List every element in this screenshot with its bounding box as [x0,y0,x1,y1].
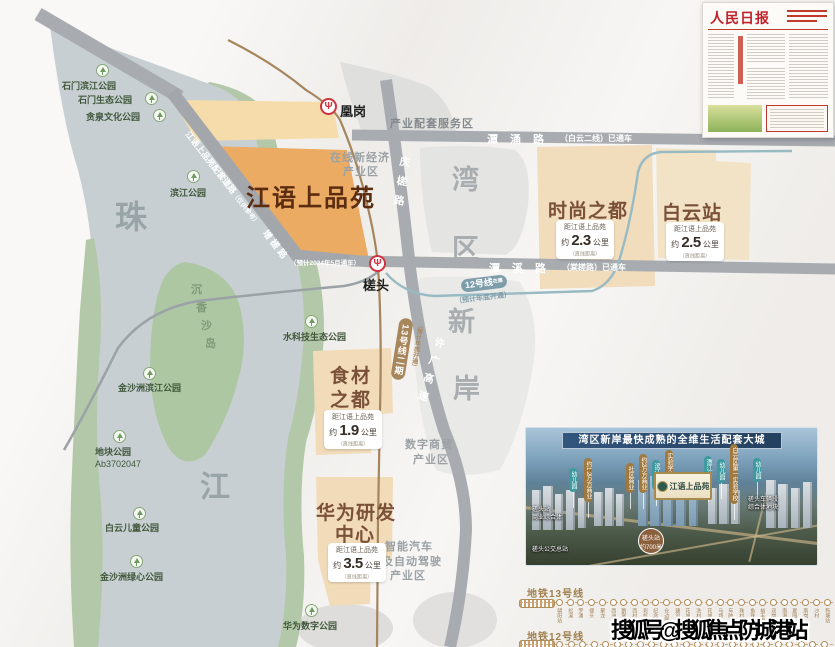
dest-baiyun-title: 白云站 [662,198,722,225]
island-char-3: 沙 [201,317,212,333]
metro13-title: 地铁13号线 [527,585,584,600]
park-tree-icon [305,315,318,328]
badge-dist-label: 距江语上品苑 [670,224,720,234]
aerial-label-line: 槎头站 [532,506,562,514]
badge-approx: 约 [561,238,569,247]
aerial-badge-line: 槎头站 [639,535,663,544]
newspaper-column [708,34,734,100]
metro13-station-label: 聚龙 [599,608,604,618]
road-label-tanyong: 潭涌路 [487,131,556,147]
park-label: 滨江公园 [170,186,206,199]
vertical-headline-strip [738,36,743,84]
metro13-station-dot [759,599,766,606]
aerial-label-line: 商业综合体 [532,514,562,522]
metro12-station-dot [821,641,828,647]
newspaper-clipping: 人民日报 [702,2,834,138]
newspaper-masthead: 人民日报 [710,8,770,28]
badge-note: （直线距离） [564,250,607,258]
aerial-tag: 白云区第一实验学校 [730,444,738,504]
metro13-station-label: 新塘站 [824,608,829,623]
metro13-station-dot [824,599,831,606]
badge-note: （直线距离） [674,252,717,260]
metro13-station-dot [695,599,702,606]
metro13-station-dot [684,599,691,606]
metro13-station-dot [652,599,659,606]
metro12-station-dot [591,641,598,647]
metro13-station-dot [791,599,798,606]
metro12-station-dot [579,641,586,647]
metro13-station-dot [663,599,670,606]
metro12-station-dot [556,641,563,647]
metro13-station-label: 沙村 [813,608,818,618]
park-label: 金沙洲滨江公园 [118,381,181,394]
aerial-building [616,494,624,526]
aerial-building [778,484,788,528]
zone-char-qu: 区 [452,227,479,266]
island-char-1: 沉 [191,281,202,297]
badge-km: 3.5 [343,555,362,572]
metro13-station-dot [567,599,574,606]
badge-approx: 约 [333,561,341,570]
aerial-label-line: 槎头车辆段 [748,496,778,504]
road-status-tanyong: （白云二线）已通车 [560,133,632,144]
metro13-station-dot [749,599,756,606]
badge-km: 2.5 [681,234,700,251]
badge-approx: 约 [329,428,337,437]
dest-shishang-badge: 距江语上品苑 约 2.3 公里 （直线距离） [556,220,614,259]
badge-dist-label: 距江语上品苑 [332,545,382,555]
metro13-station-dot [620,599,627,606]
badge-unit: 公里 [703,240,719,249]
metro13-station-label: 朝阳站 [556,608,561,623]
island-char-2: 香 [196,299,207,315]
park-tree-icon [133,507,146,520]
metro12-station-dot [568,641,575,647]
park-label: 贪泉文化公园 [86,110,140,123]
badge-unit: 公里 [593,238,609,247]
metro13-station-label: 罗涌 [577,608,582,618]
watermark-text: 搜狐号@搜狐焦点防城港站 [611,613,802,645]
station-name-chatou: 槎头 [363,275,389,294]
metro12-station-dot [809,641,816,647]
newspaper-photo [708,105,762,132]
park-label: 石门生态公园 [78,93,132,106]
badge-note: （直线距离） [332,440,375,448]
metro13-terminal-box [519,599,555,608]
metro-station-marker-chatou: Ψ [369,255,386,272]
park-tree-icon [130,555,143,568]
line12-pill-label: 12号线 [464,277,493,290]
aerial-tag: 幼儿园 [569,468,577,492]
park-tree-icon [305,604,318,617]
zone-char-xin: 新 [448,300,475,339]
dest-shicai-title-1: 食材 [330,361,372,388]
aerial-building [791,488,800,528]
headline-bar [787,20,817,22]
aerial-tag: 幼儿园 [717,459,725,483]
badge-unit: 公里 [361,428,377,437]
masthead-rule [708,29,828,30]
aerial-photo-panel: 湾区新岸最快成熟的全维生活配套大城 幼儿园 约1.2万方商业 社区商业 约2万方… [525,427,818,566]
park-tree-icon [153,109,166,122]
badge-note: （直线距离） [336,573,379,581]
metro13-station-dot [738,599,745,606]
metro13-station-dot [642,599,649,606]
metro13-station-dot [577,599,584,606]
park-tree-icon [113,430,126,443]
zone-char-an: 岸 [453,367,480,406]
dest-shishang-title: 时尚之都 [548,196,628,223]
park-tree-icon [143,367,156,380]
aerial-label-bus-terminal: 槎头公交总站 [532,546,568,554]
aerial-building [594,492,603,526]
newspaper-column [789,34,828,100]
station-name-huanggang: 凰岗 [340,101,366,120]
headline-bar [787,15,827,17]
aerial-badge-line: 约700米 [639,544,663,553]
aerial-label-chatou-hub: 槎头站 商业综合体 [532,506,562,523]
district-chanye: 产业配套服务区 [390,115,474,131]
badge-km: 1.9 [339,422,358,439]
dest-shicai-badge: 距江语上品苑 约 1.9 公里 （直线距离） [324,410,382,449]
road-label-open2024: （预计2024年5月通车） [290,257,360,267]
newspaper-boxed-article [766,105,828,132]
metro13-station-dot [727,599,734,606]
park-label: 金沙洲绿心公园 [100,570,163,583]
island-char-4: 岛 [205,335,216,351]
badge-dist-value: 约 2.5 公里 [670,234,720,251]
plaque-text: 江语上品苑 [670,481,710,492]
aerial-tag: 幼儿园 [753,458,761,482]
metro13-station-dot [781,599,788,606]
metro13-station-dot [802,599,809,606]
headline-bar [787,10,827,12]
metro13-station-dot [610,599,617,606]
metro13-station-dot [631,599,638,606]
river-char-zhu: 珠 [115,192,147,238]
promo-map-screenshot: 珠 江 沉 香 沙 岛 湾 区 新 岸 产业配套服务区 在线新经济 产业区 数字… [0,0,835,647]
metro13-station-dot [706,599,713,606]
park-label: 白云儿童公园 [105,521,159,534]
park-code: Ab3702047 [95,459,141,469]
badge-dist-value: 约 1.9 公里 [328,422,378,439]
district-shuzi-2: 产业区 [413,451,449,467]
badge-km: 2.3 [571,232,590,249]
aerial-banner-title: 湾区新岸最快成熟的全维生活配套大城 [562,432,782,449]
park-label: 地块公园 [95,445,131,458]
park-label: 石门滨江公园 [62,79,116,92]
badge-unit: 公里 [365,561,381,570]
metro13-station-label: 南岗 [802,608,807,618]
park-tree-icon [145,92,158,105]
park-label: 华为数字公园 [283,619,337,632]
badge-dist-label: 距江语上品苑 [560,222,610,232]
aerial-tag: 社区商业 [626,463,634,493]
aerial-building [578,498,586,528]
newspaper-column [747,68,785,100]
project-logo-icon [657,481,668,492]
district-zhineng-3: 产业区 [390,567,426,583]
project-title: 江语上品苑 [246,178,376,213]
metro13-station-dot [588,599,595,606]
zone-char-wan: 湾 [452,158,479,197]
metro13-station-label: 松溪 [567,608,572,618]
metro13-station-dot [556,599,563,606]
district-zaixian-2: 产业区 [343,163,379,179]
badge-dist-label: 距江语上品苑 [328,412,378,422]
badge-approx: 约 [671,240,679,249]
metro13-station-dot [674,599,681,606]
road-label-tanxi: 潭溪路 [489,260,558,276]
line12-pill-tag: 在建 [493,278,504,285]
metro13-station-dot [770,599,777,606]
newspaper-column [747,34,785,64]
metro12-station-dot [602,641,609,647]
district-shuzi-1: 数字商贸 [405,436,453,452]
aerial-distance-badge: 槎头站 约700米 [638,528,664,554]
park-tree-icon [96,64,109,77]
badge-dist-value: 约 3.5 公里 [332,555,382,572]
metro13-station-label: 槎头 [588,608,593,618]
aerial-building [605,488,614,526]
park-label: 水科技生态公园 [283,330,346,343]
metro13-station-dot [599,599,606,606]
aerial-tag: 约2万方商业 [639,454,647,493]
park-tree-icon [187,170,200,183]
badge-dist-value: 约 2.3 公里 [560,232,610,249]
aerial-tag: 约1.2万方商业 [584,458,592,502]
aerial-building [803,482,812,528]
dest-baiyun-badge: 距江语上品苑 约 2.5 公里 （直线距离） [666,222,724,261]
newspaper-column [770,109,824,128]
metro13-station-dot [813,599,820,606]
aerial-project-plaque: 江语上品苑 [654,472,712,500]
aerial-label-line: 综合体地块 [748,504,778,512]
metro-station-marker-huanggang: Ψ [320,98,337,115]
dest-huawei-badge: 距江语上品苑 约 3.5 公里 （直线距离） [328,543,386,582]
aerial-label-depot: 槎头车辆段 综合体地块 [748,496,778,513]
river-char-jiang: 江 [200,462,230,506]
district-zhineng-1: 智能汽车 [385,538,433,554]
metro13-station-dot [717,599,724,606]
road-status-tanxi: （棠槎路）已通车 [562,262,626,273]
dest-shicai-title-2: 之都 [330,385,372,412]
